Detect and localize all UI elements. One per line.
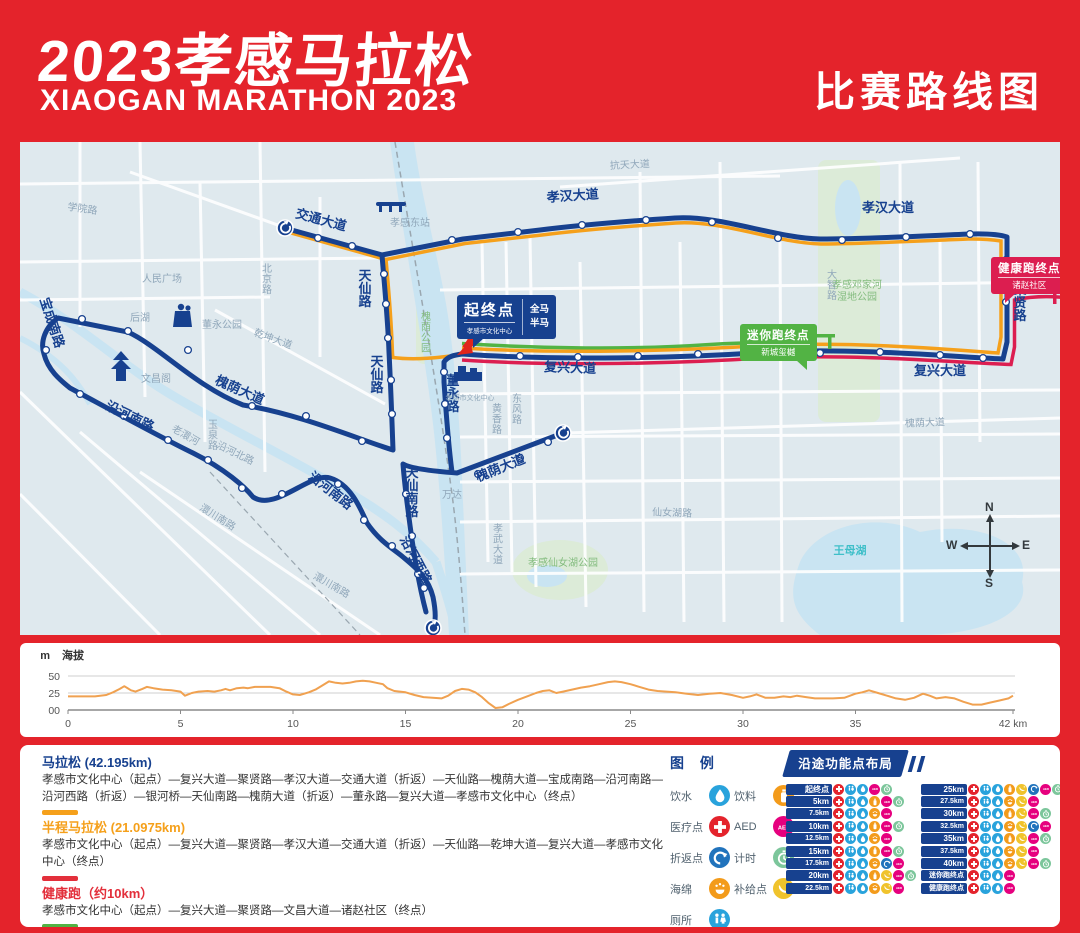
water-icon bbox=[709, 785, 730, 806]
aed-icon: AED bbox=[881, 808, 892, 819]
station-label: 迷你跑终点 bbox=[921, 870, 967, 881]
timing-icon bbox=[1040, 808, 1051, 819]
park-pond bbox=[835, 180, 861, 236]
toilet-icon bbox=[845, 796, 856, 807]
svg-text:AED: AED bbox=[1030, 849, 1036, 853]
map-label: 董永路 bbox=[445, 373, 460, 414]
station-row: 迷你跑终点AED bbox=[921, 870, 1060, 882]
svg-text:AED: AED bbox=[1030, 837, 1036, 841]
km-marker bbox=[383, 301, 390, 308]
stations-layout: 沿途功能点布局 起终点AED5kmAED7.5kmAED10kmAED12.5k… bbox=[786, 750, 1058, 895]
map-label: 北京路 bbox=[262, 263, 272, 296]
km-marker bbox=[79, 316, 86, 323]
km-marker bbox=[165, 437, 172, 444]
supply-icon bbox=[1016, 784, 1027, 795]
aed-icon: AED bbox=[881, 821, 892, 832]
drink-icon bbox=[869, 870, 880, 881]
km-marker bbox=[695, 351, 702, 358]
sponge-icon bbox=[869, 858, 880, 869]
route-title: 马拉松 (42.195km) bbox=[42, 752, 670, 771]
water-icon bbox=[857, 833, 868, 844]
map-label: 复兴大道 bbox=[913, 363, 966, 378]
map-label: 孝感仙女湖公园 bbox=[528, 556, 598, 569]
axis-label: 00 bbox=[48, 705, 60, 717]
station-label: 40km bbox=[921, 858, 967, 869]
sponge-icon bbox=[1004, 846, 1015, 857]
km-marker bbox=[303, 413, 310, 420]
legend-item: 饮料 bbox=[734, 780, 794, 811]
axis-label: 15 bbox=[400, 718, 412, 730]
toilet-icon bbox=[980, 883, 991, 894]
svg-text:AED: AED bbox=[871, 787, 877, 791]
legend-item: 医疗点 bbox=[670, 811, 730, 842]
supply-icon bbox=[1016, 833, 1027, 844]
station-label: 7.5km bbox=[786, 808, 832, 819]
stations-title: 沿途功能点布局 bbox=[798, 753, 893, 772]
km-marker bbox=[449, 237, 456, 244]
turnaround-icon-yanhexi bbox=[425, 620, 441, 635]
aed-icon: AED bbox=[881, 796, 892, 807]
elevation-panel: m海拔5025000510152025303542 km bbox=[20, 643, 1060, 737]
km-marker bbox=[185, 347, 192, 354]
station-label: 10km bbox=[786, 821, 832, 832]
km-marker bbox=[545, 439, 552, 446]
water-icon bbox=[992, 821, 1003, 832]
route-color-bar bbox=[42, 876, 78, 881]
map-label: 文昌阁 bbox=[141, 372, 171, 385]
water-icon bbox=[992, 833, 1003, 844]
toilet-icon bbox=[845, 808, 856, 819]
map-label: 孝汉大道 bbox=[545, 186, 599, 205]
compass-s: S bbox=[985, 576, 993, 590]
km-marker bbox=[125, 328, 132, 335]
supply-icon bbox=[1016, 808, 1027, 819]
aed-icon: AED bbox=[1028, 833, 1039, 844]
timing-icon bbox=[881, 784, 892, 795]
turnaround-icon bbox=[709, 847, 730, 868]
medical-icon bbox=[968, 858, 979, 869]
station-row: 10kmAED bbox=[786, 820, 916, 832]
legend-item-label: 饮料 bbox=[734, 788, 768, 804]
map-label: 沿河南路 bbox=[103, 398, 157, 435]
axis-label: 20 bbox=[512, 718, 524, 730]
route-block: 半程马拉松 (21.0975km)孝感市文化中心（起点）—复兴大道—聚贤路—孝汉… bbox=[42, 810, 670, 870]
station-row: 健康跑终点AED bbox=[921, 882, 1060, 894]
map-label: 乾坤大道 bbox=[252, 326, 294, 352]
station-row: 12.5kmAED bbox=[786, 833, 916, 845]
timing-icon bbox=[893, 796, 904, 807]
supply-icon bbox=[1016, 858, 1027, 869]
km-marker bbox=[877, 349, 884, 356]
water-icon bbox=[857, 784, 868, 795]
axis-label: 5 bbox=[178, 718, 184, 730]
start-finish-callout: 起终点 孝感市文化中心 全马 半马 bbox=[457, 295, 556, 339]
km-marker bbox=[709, 219, 716, 226]
start-finish-tags: 全马 半马 bbox=[530, 299, 549, 335]
station-label: 5km bbox=[786, 796, 832, 807]
train-station-icon bbox=[376, 202, 406, 212]
route-descriptions: 马拉松 (42.195km)孝感市文化中心（起点）—复兴大道—聚贤路—孝汉大道—… bbox=[42, 752, 670, 927]
dongyong-statue-icon bbox=[173, 304, 192, 327]
route-color-bar bbox=[42, 810, 78, 815]
supply-icon bbox=[1016, 796, 1027, 807]
turnaround-icon-huaiyin bbox=[555, 425, 571, 441]
km-marker bbox=[515, 229, 522, 236]
legend-item: AEDAED bbox=[734, 811, 794, 842]
svg-text:AED: AED bbox=[883, 825, 889, 829]
health-finish-venue: 诸赵社区 bbox=[998, 279, 1060, 291]
water-icon bbox=[992, 796, 1003, 807]
legend-column-1: 饮水医疗点折返点海绵厕所 bbox=[670, 780, 730, 927]
tag-full-marathon: 全马 bbox=[530, 303, 549, 317]
toilet-icon bbox=[980, 784, 991, 795]
map-label: 天仙南路 bbox=[405, 465, 419, 519]
km-marker bbox=[817, 350, 824, 357]
svg-text:AED: AED bbox=[1006, 887, 1012, 891]
map-label: 人民广场 bbox=[142, 272, 182, 285]
info-panel: 马拉松 (42.195km)孝感市文化中心（起点）—复兴大道—聚贤路—孝汉大道—… bbox=[20, 745, 1060, 927]
poster-page: 2023孝感马拉松 XIAOGAN MARATHON 2023 比赛路线图 bbox=[0, 0, 1080, 933]
station-label: 起终点 bbox=[786, 784, 832, 795]
course-map-svg: 交通大道孝汉大道孝汉大道天仙路天仙路天仙南路聚贤路董永路复兴大道复兴大道槐荫大道… bbox=[20, 142, 1060, 635]
map-label: 抗天大道 bbox=[610, 157, 651, 172]
km-marker bbox=[239, 485, 246, 492]
km-marker bbox=[77, 391, 84, 398]
toilet-icon bbox=[845, 883, 856, 894]
km-marker bbox=[643, 217, 650, 224]
svg-text:AED: AED bbox=[1006, 874, 1012, 878]
km-marker bbox=[389, 543, 396, 550]
supply-icon bbox=[881, 883, 892, 894]
stations-column-2: 25kmAED27.5kmAED30kmAED32.5kmAED35kmAED3… bbox=[921, 783, 1060, 895]
sponge-icon bbox=[1004, 821, 1015, 832]
legend-title: 图 例 bbox=[670, 753, 794, 773]
tag-half-marathon: 半马 bbox=[530, 317, 549, 331]
legend-item: 海绵 bbox=[670, 873, 730, 904]
stations-column-1: 起终点AED5kmAED7.5kmAED10kmAED12.5kmAED15km… bbox=[786, 783, 916, 895]
callout-divider bbox=[522, 299, 523, 335]
sponge-icon bbox=[1004, 796, 1015, 807]
km-marker bbox=[381, 271, 388, 278]
water-icon bbox=[857, 846, 868, 857]
station-row: 35kmAED bbox=[921, 833, 1060, 845]
svg-text:AED: AED bbox=[895, 862, 901, 866]
map-label: 槐荫大道 bbox=[905, 415, 945, 429]
station-row: 37.5kmAED bbox=[921, 845, 1060, 857]
legend-item: 饮水 bbox=[670, 780, 730, 811]
km-marker bbox=[388, 377, 395, 384]
timing-icon bbox=[905, 870, 916, 881]
station-label: 35km bbox=[921, 833, 967, 844]
toilet-icon bbox=[980, 796, 991, 807]
legend-item-label: 厕所 bbox=[670, 912, 704, 928]
svg-text:AED: AED bbox=[883, 837, 889, 841]
medical-icon bbox=[968, 821, 979, 832]
water-icon bbox=[992, 808, 1003, 819]
map-label: 孝感邓家河 bbox=[832, 278, 882, 291]
station-row: 5kmAED bbox=[786, 795, 916, 807]
toilet-icon bbox=[845, 858, 856, 869]
medical-icon bbox=[833, 796, 844, 807]
axis-label: 35 bbox=[850, 718, 862, 730]
aed-icon: AED bbox=[893, 883, 904, 894]
station-row: 30kmAED bbox=[921, 808, 1060, 820]
medical-icon bbox=[833, 858, 844, 869]
axis-label: 50 bbox=[48, 671, 60, 683]
aed-icon: AED bbox=[893, 870, 904, 881]
map-label: 湿地公园 bbox=[837, 290, 877, 303]
compass: N S W E bbox=[958, 502, 1022, 588]
route-title: 健康跑（约10km） bbox=[42, 883, 670, 902]
km-marker bbox=[315, 235, 322, 242]
stations-title-box: 沿途功能点布局 bbox=[782, 750, 908, 777]
legend-item-label: 计时 bbox=[734, 850, 768, 866]
water-icon bbox=[992, 858, 1003, 869]
aed-icon: AED bbox=[1028, 846, 1039, 857]
aed-icon: AED bbox=[893, 858, 904, 869]
turnaround-icon bbox=[881, 858, 892, 869]
aed-icon: AED bbox=[881, 833, 892, 844]
course-map: 交通大道孝汉大道孝汉大道天仙路天仙路天仙南路聚贤路董永路复兴大道复兴大道槐荫大道… bbox=[20, 142, 1060, 635]
legend-item-label: 医疗点 bbox=[670, 819, 704, 835]
toilet-icon bbox=[845, 784, 856, 795]
toilet-icon bbox=[980, 821, 991, 832]
toilet-icon bbox=[980, 808, 991, 819]
slash-decoration bbox=[916, 756, 925, 772]
legend-columns: 饮水医疗点折返点海绵厕所 饮料AEDAED计时补给点 bbox=[670, 780, 794, 927]
svg-text:AED: AED bbox=[883, 849, 889, 853]
station-row: 起终点AED bbox=[786, 783, 916, 795]
timing-icon bbox=[893, 846, 904, 857]
legend-item: 折返点 bbox=[670, 842, 730, 873]
axis-label: 25 bbox=[625, 718, 637, 730]
station-row: 25kmAED bbox=[921, 783, 1060, 795]
mini-finish-title: 迷你跑终点 bbox=[747, 327, 810, 345]
route-block: 马拉松 (42.195km)孝感市文化中心（起点）—复兴大道—聚贤路—孝汉大道—… bbox=[42, 752, 670, 805]
station-label: 37.5km bbox=[921, 846, 967, 857]
station-row: 7.5kmAED bbox=[786, 808, 916, 820]
start-finish-callout-left: 起终点 孝感市文化中心 bbox=[464, 299, 515, 335]
station-row: 20kmAED bbox=[786, 870, 916, 882]
map-label: 后湖 bbox=[130, 312, 150, 324]
medical-icon bbox=[968, 796, 979, 807]
legend-column-2: 饮料AEDAED计时补给点 bbox=[734, 780, 794, 927]
map-label: 黄香路 bbox=[492, 402, 502, 436]
sponge-icon bbox=[869, 883, 880, 894]
legend-item-label: 补给点 bbox=[734, 881, 768, 897]
water-icon bbox=[857, 858, 868, 869]
station-label: 12.5km bbox=[786, 833, 832, 844]
map-label: 孝汉大道 bbox=[861, 200, 914, 215]
stations-columns: 起终点AED5kmAED7.5kmAED10kmAED12.5kmAED15km… bbox=[786, 783, 1058, 895]
km-marker bbox=[775, 235, 782, 242]
axis-label: 25 bbox=[48, 688, 60, 700]
map-label: 复兴大道 bbox=[543, 359, 597, 376]
legend-item: 计时 bbox=[734, 842, 794, 873]
water-icon bbox=[857, 808, 868, 819]
callout-pointer bbox=[1005, 293, 1016, 303]
map-label: 仙女湖路 bbox=[652, 505, 692, 519]
axis-label: m bbox=[40, 650, 50, 662]
station-row: 27.5kmAED bbox=[921, 795, 1060, 807]
station-label: 27.5km bbox=[921, 796, 967, 807]
map-label: 王母湖 bbox=[834, 543, 867, 557]
toilet-icon bbox=[980, 846, 991, 857]
station-label: 32.5km bbox=[921, 821, 967, 832]
timing-icon bbox=[1040, 833, 1051, 844]
sponge-icon bbox=[1004, 858, 1015, 869]
map-label: 天仙路 bbox=[370, 354, 384, 395]
drink-icon bbox=[1004, 808, 1015, 819]
route-description: 孝感市文化中心（起点）—复兴大道—聚贤路—孝汉大道—交通大道（折返）—天仙路—槐… bbox=[42, 772, 670, 805]
aed-icon: AED bbox=[1028, 808, 1039, 819]
callout-pointer bbox=[796, 360, 807, 370]
water-icon bbox=[857, 870, 868, 881]
aed-icon: AED bbox=[1028, 796, 1039, 807]
mini-run-finish-callout: 迷你跑终点 新城玺樾 bbox=[740, 324, 817, 361]
medical-icon bbox=[968, 870, 979, 881]
svg-text:AED: AED bbox=[895, 874, 901, 878]
timing-icon bbox=[1040, 858, 1051, 869]
medical-icon bbox=[833, 784, 844, 795]
sponge-icon bbox=[869, 833, 880, 844]
map-label: 孝武大道 bbox=[493, 523, 503, 567]
supply-icon bbox=[1016, 846, 1027, 857]
mini-finish-venue: 新城玺樾 bbox=[747, 346, 810, 358]
station-label: 25km bbox=[921, 784, 967, 795]
toilet-icon bbox=[845, 833, 856, 844]
sponge-icon bbox=[869, 808, 880, 819]
station-row: 15kmAED bbox=[786, 845, 916, 857]
station-row: 40kmAED bbox=[921, 857, 1060, 869]
route-map-label: 比赛路线图 bbox=[814, 58, 1044, 118]
supply-icon bbox=[1016, 821, 1027, 832]
map-label: 孝感东站 bbox=[390, 216, 430, 229]
drink-icon bbox=[1004, 784, 1015, 795]
station-label: 20km bbox=[786, 870, 832, 881]
km-marker bbox=[361, 517, 368, 524]
aed-icon: AED bbox=[1004, 870, 1015, 881]
legend-item: 厕所 bbox=[670, 904, 730, 927]
health-finish-title: 健康跑终点 bbox=[998, 260, 1060, 278]
km-marker bbox=[349, 243, 356, 250]
route-color-bar bbox=[42, 924, 78, 927]
km-marker bbox=[389, 411, 396, 418]
turnaround-icon bbox=[1028, 784, 1039, 795]
turnaround-icon bbox=[1028, 821, 1039, 832]
route-description: 孝感市文化中心（起点）—复兴大道—聚贤路—孝汉大道—交通大道（折返）—天仙路—乾… bbox=[42, 837, 670, 870]
km-marker bbox=[980, 355, 987, 362]
medical-icon bbox=[709, 816, 730, 837]
station-row: 17.5kmAED bbox=[786, 857, 916, 869]
svg-text:AED: AED bbox=[1030, 800, 1036, 804]
toilet-icon bbox=[709, 909, 730, 927]
medical-icon bbox=[968, 883, 979, 894]
station-label: 30km bbox=[921, 808, 967, 819]
station-label: 健康跑终点 bbox=[921, 883, 967, 894]
map-label: 澴川南路 bbox=[197, 501, 238, 533]
aed-icon: AED bbox=[869, 784, 880, 795]
axis-label: 0 bbox=[65, 718, 71, 730]
km-marker bbox=[279, 491, 286, 498]
km-marker bbox=[579, 222, 586, 229]
km-marker bbox=[205, 457, 212, 464]
svg-text:AED: AED bbox=[1030, 812, 1036, 816]
axis-label: 30 bbox=[737, 718, 749, 730]
svg-text:AED: AED bbox=[1042, 787, 1048, 791]
start-finish-title: 起终点 bbox=[464, 299, 515, 323]
km-marker bbox=[385, 335, 392, 342]
medical-icon bbox=[833, 883, 844, 894]
toilet-icon bbox=[980, 833, 991, 844]
axis-label: 42 km bbox=[999, 718, 1028, 730]
km-marker bbox=[43, 347, 50, 354]
medical-icon bbox=[833, 833, 844, 844]
map-label: 万达 bbox=[442, 489, 462, 501]
km-marker bbox=[359, 438, 366, 445]
water-icon bbox=[992, 784, 1003, 795]
compass-n: N bbox=[985, 500, 994, 514]
drink-icon bbox=[869, 846, 880, 857]
sponge-icon bbox=[709, 878, 730, 899]
medical-icon bbox=[968, 833, 979, 844]
legend-item-label: AED bbox=[734, 821, 768, 833]
compass-e: E bbox=[1022, 538, 1030, 552]
km-marker bbox=[635, 353, 642, 360]
map-label: 澴川南路 bbox=[311, 569, 352, 600]
medical-icon bbox=[833, 846, 844, 857]
medical-icon bbox=[833, 821, 844, 832]
water-icon bbox=[992, 870, 1003, 881]
timing-icon bbox=[893, 821, 904, 832]
map-label: 董永公园 bbox=[202, 318, 242, 331]
km-marker bbox=[937, 352, 944, 359]
drink-icon bbox=[1004, 833, 1015, 844]
stations-title-wrap: 沿途功能点布局 bbox=[786, 750, 1058, 777]
legend-item-label: 海绵 bbox=[670, 881, 704, 897]
route-block: 健康跑（约10km）孝感市文化中心（起点）—复兴大道—聚贤路—文昌大道—诸赵社区… bbox=[42, 876, 670, 920]
compass-w: W bbox=[946, 538, 957, 552]
supply-icon bbox=[881, 870, 892, 881]
route-block: 迷你跑（约5km）孝感市文化中心（起点）—复兴大道—新城玺樾（终点） bbox=[42, 924, 670, 927]
aed-icon: AED bbox=[881, 846, 892, 857]
medical-icon bbox=[833, 808, 844, 819]
chart-element bbox=[68, 681, 1013, 708]
km-marker bbox=[444, 435, 451, 442]
station-row: 22.5kmAED bbox=[786, 882, 916, 894]
station-label: 17.5km bbox=[786, 858, 832, 869]
legend-item-label: 折返点 bbox=[670, 850, 704, 866]
map-label: 天仙路 bbox=[358, 268, 372, 309]
health-run-finish-callout: 健康跑终点 诸赵社区 bbox=[991, 257, 1060, 294]
drink-icon bbox=[869, 821, 880, 832]
route-half bbox=[291, 223, 1001, 359]
toilet-icon bbox=[980, 870, 991, 881]
svg-text:AED: AED bbox=[1030, 862, 1036, 866]
toilet-icon bbox=[980, 858, 991, 869]
svg-text:AED: AED bbox=[883, 800, 889, 804]
medical-icon bbox=[968, 784, 979, 795]
km-marker bbox=[517, 353, 524, 360]
aed-icon: AED bbox=[1040, 821, 1051, 832]
drink-icon bbox=[869, 796, 880, 807]
axis-label: 10 bbox=[287, 718, 299, 730]
axis-label: 海拔 bbox=[62, 648, 85, 662]
aed-icon: AED bbox=[1004, 883, 1015, 894]
start-finish-venue: 孝感市文化中心 bbox=[464, 325, 515, 335]
map-label: 东风路 bbox=[512, 392, 522, 426]
slash-decoration bbox=[907, 756, 916, 772]
